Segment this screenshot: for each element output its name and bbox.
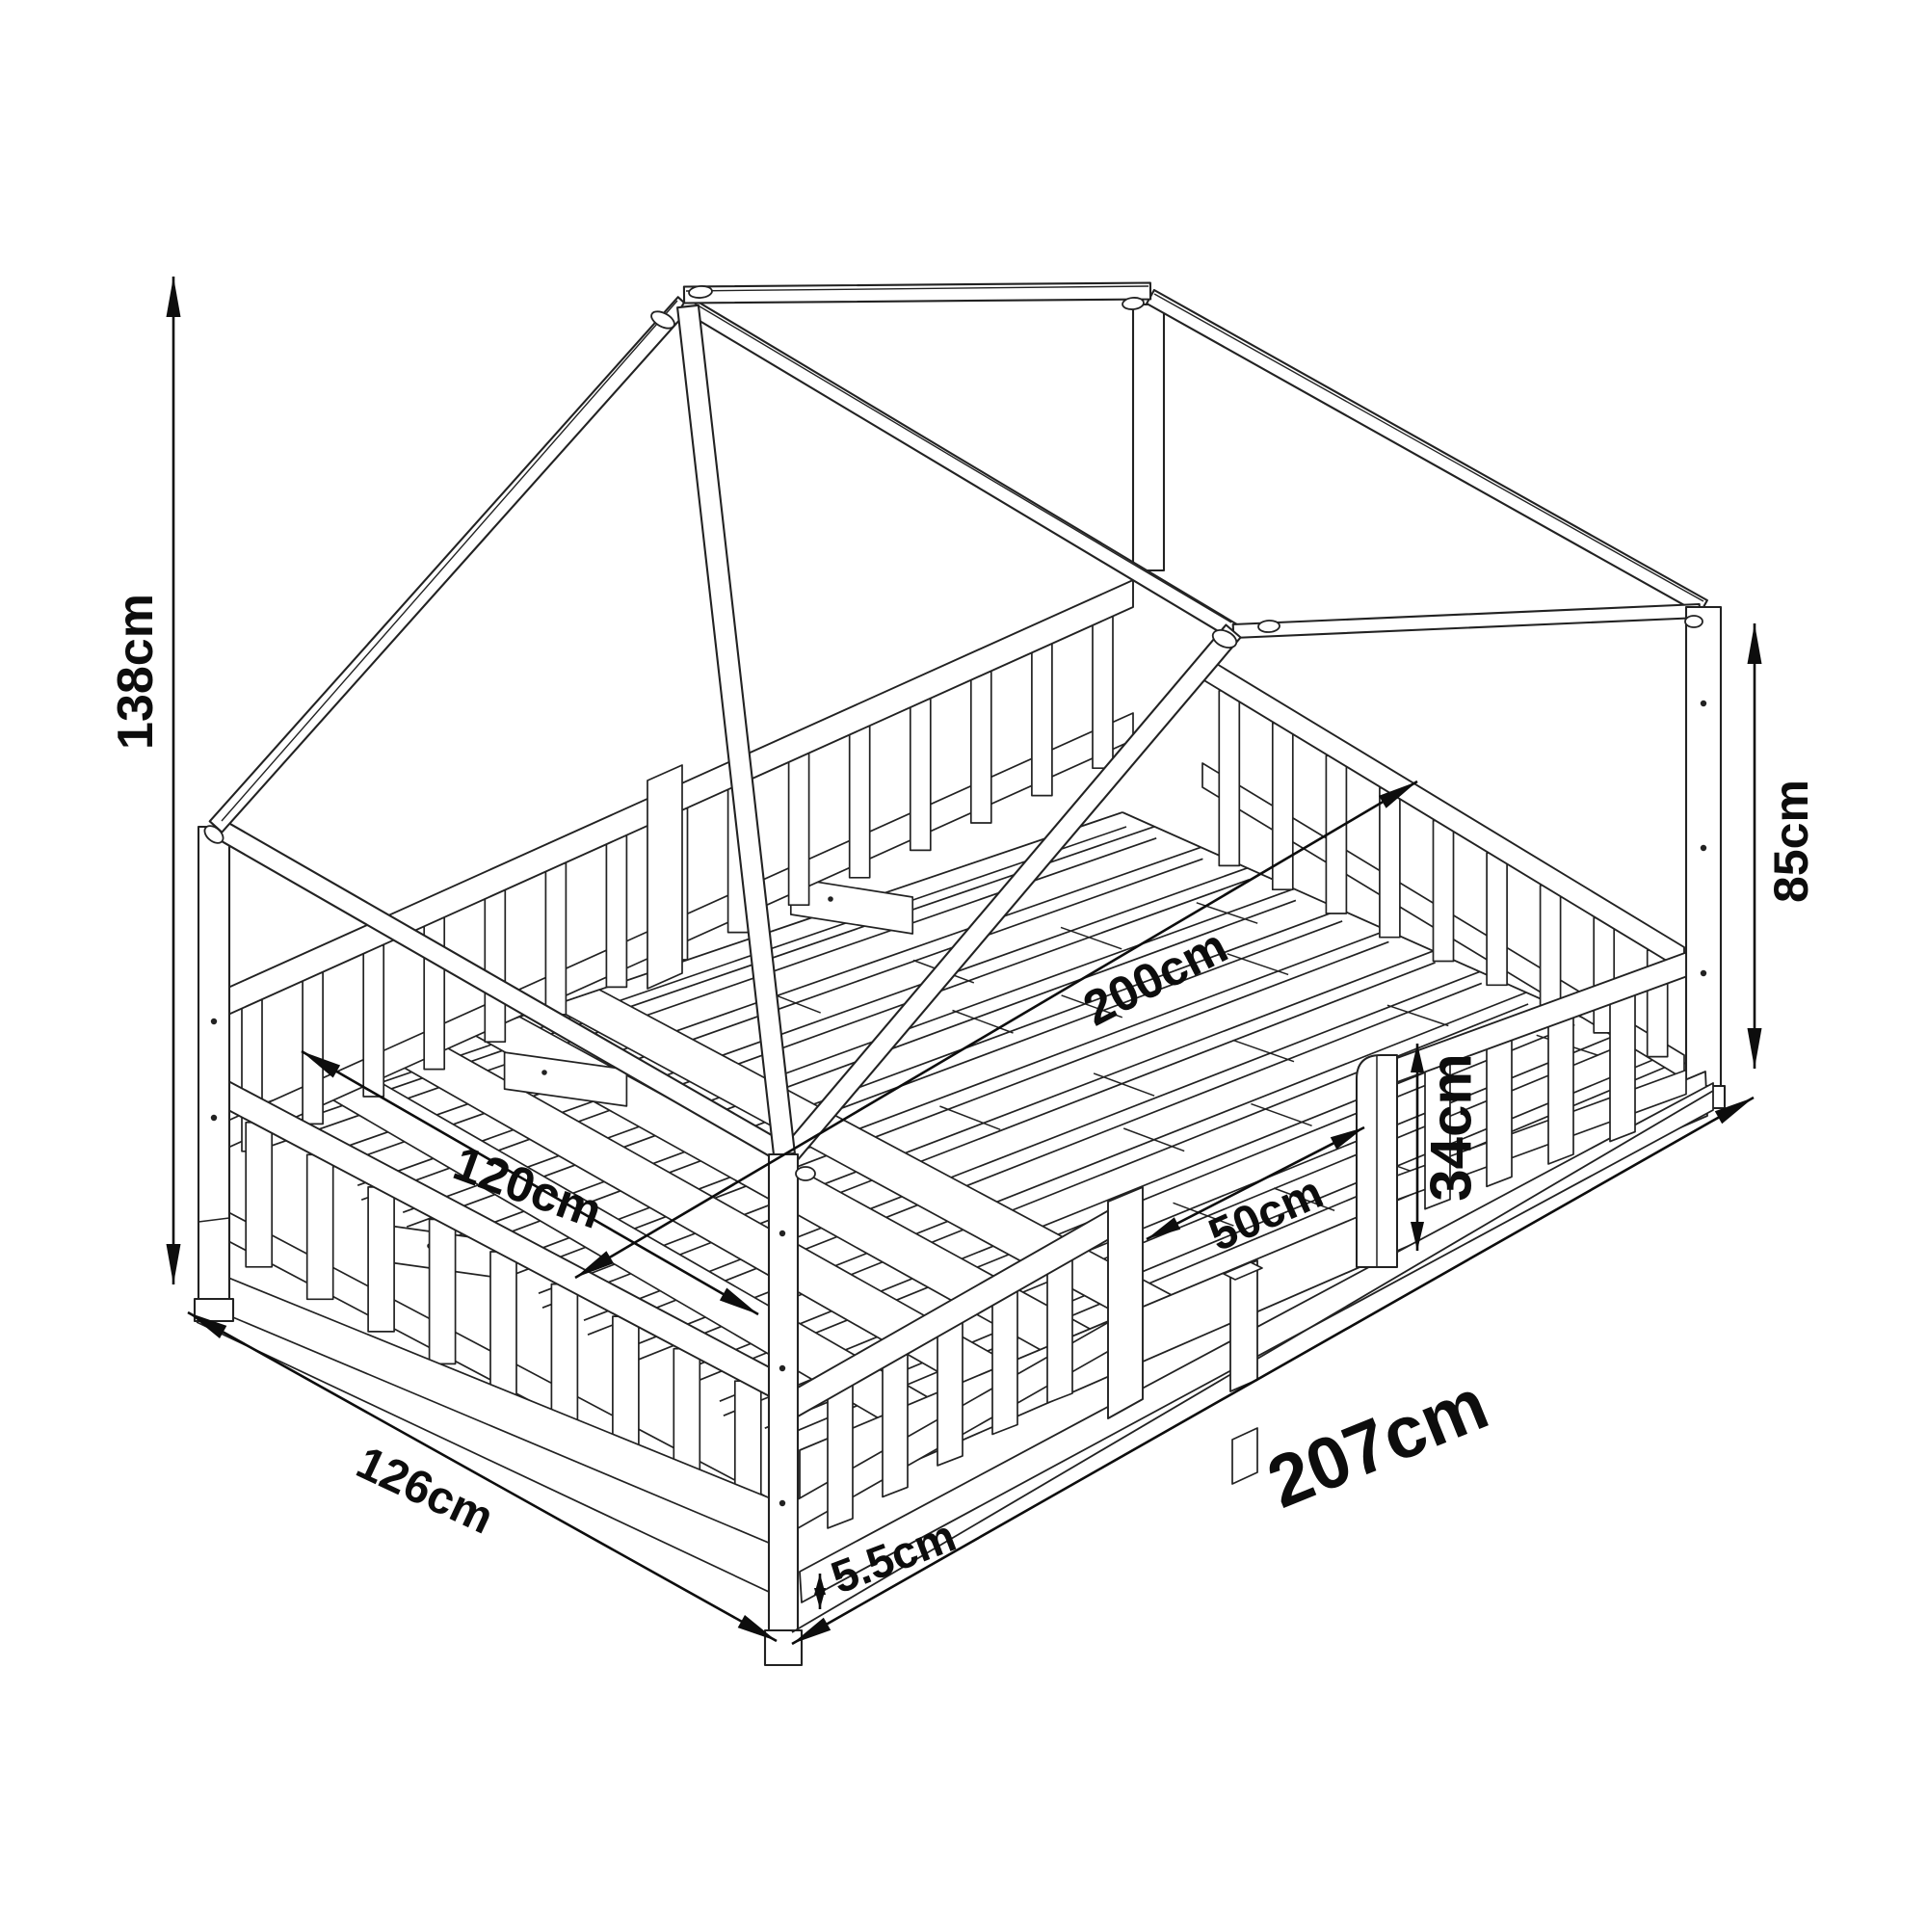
svg-text:138cm: 138cm	[108, 594, 164, 750]
svg-text:85cm: 85cm	[1764, 780, 1818, 903]
svg-text:34cm: 34cm	[1419, 1053, 1484, 1201]
